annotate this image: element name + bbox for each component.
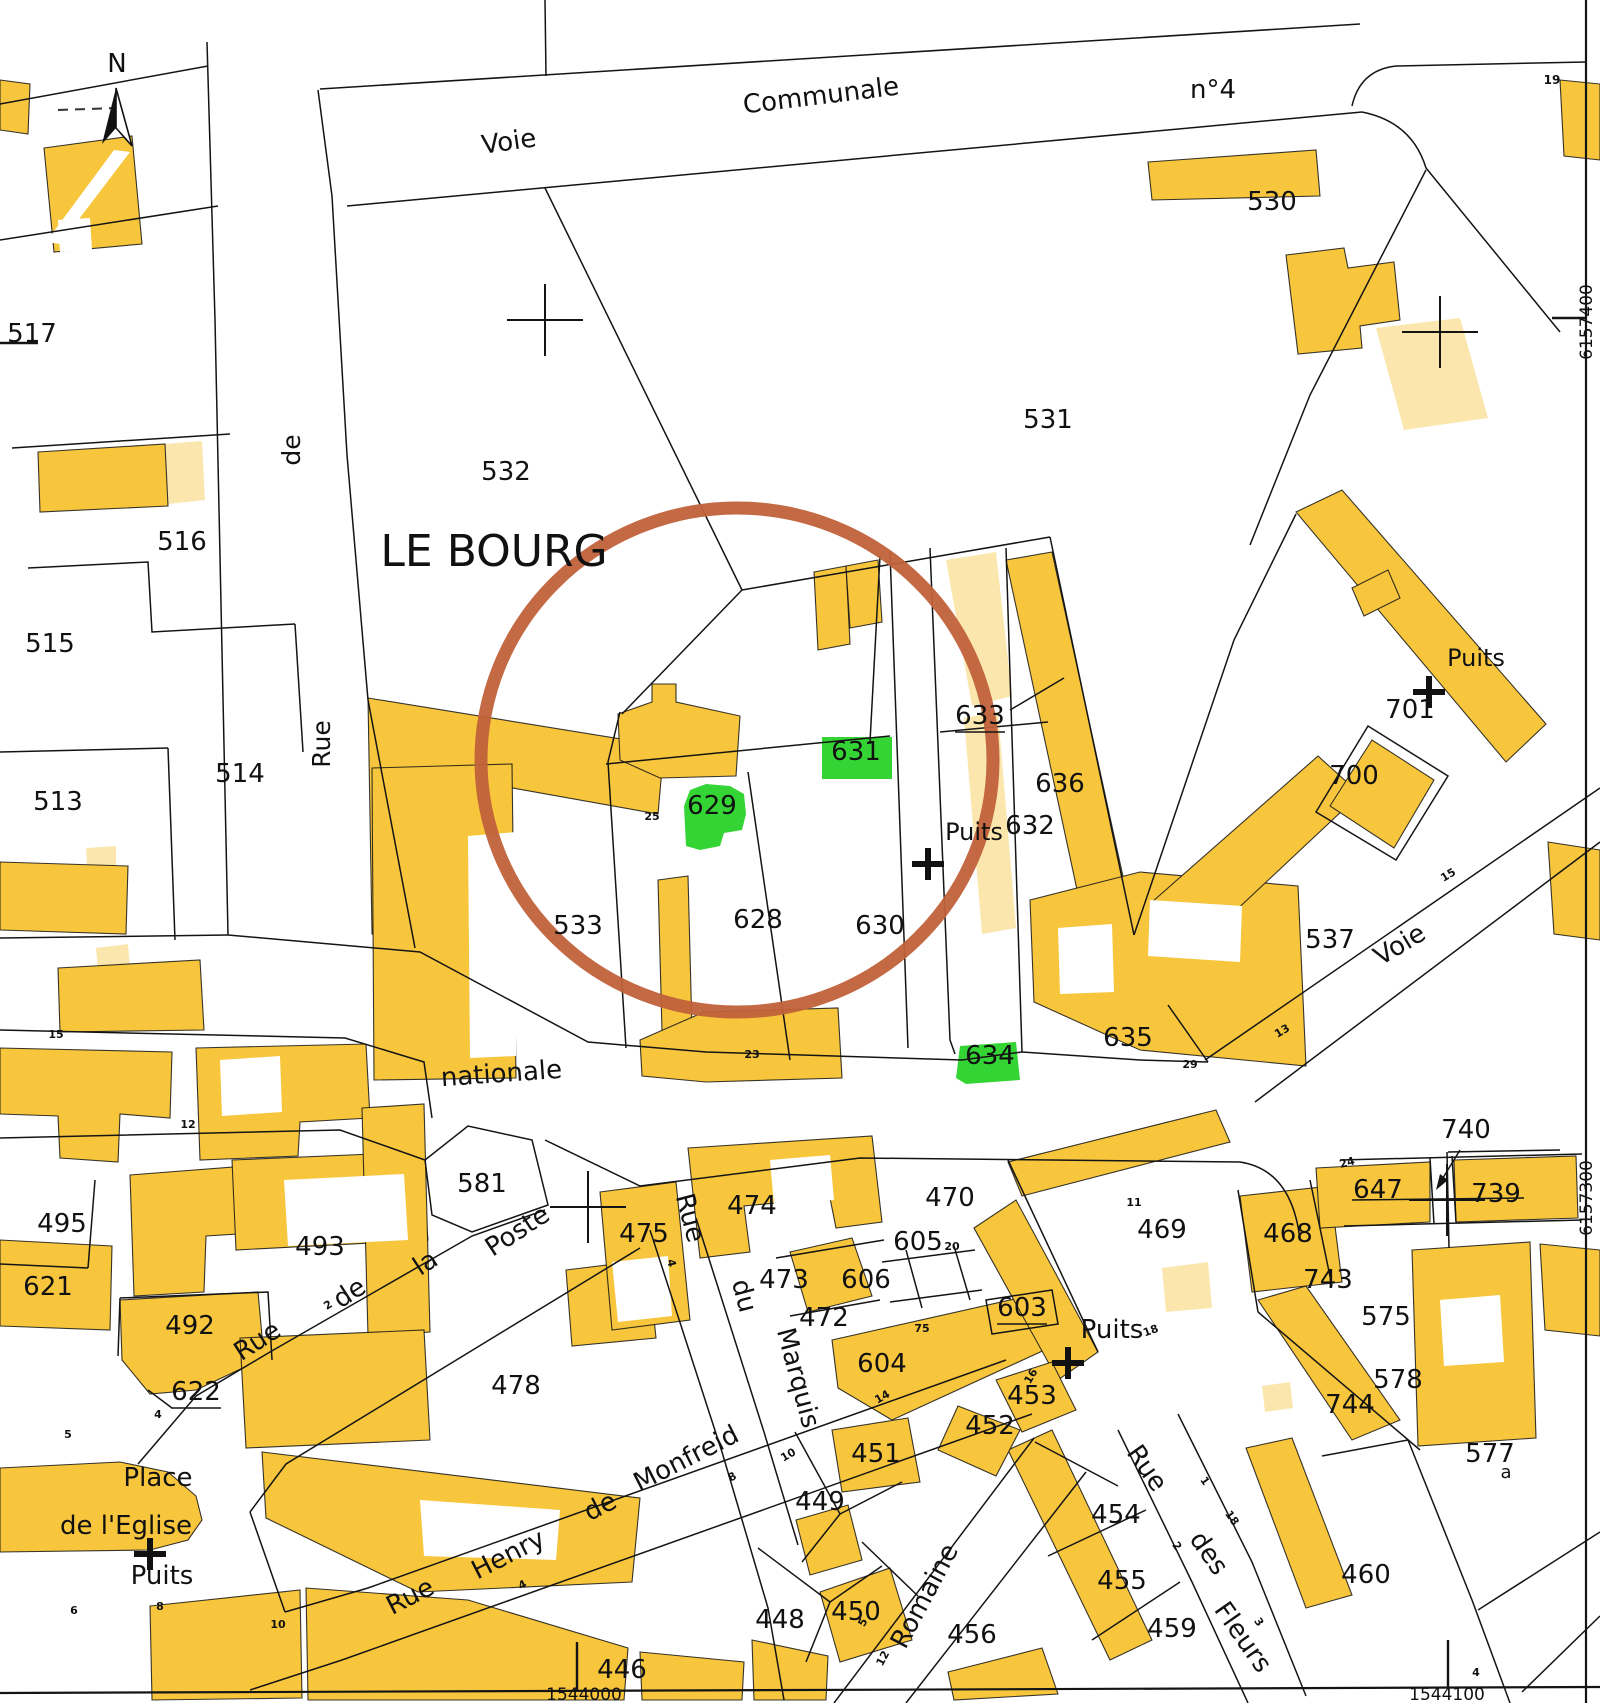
building-light — [1162, 1262, 1212, 1312]
map-label-647: 647 — [1353, 1175, 1403, 1205]
map-label-75: 75 — [914, 1322, 929, 1335]
map-label-4: 4 — [1472, 1666, 1480, 1679]
building — [814, 566, 850, 650]
map-label-636: 636 — [1035, 769, 1085, 799]
map-label-513: 513 — [33, 787, 83, 817]
map-label-8: 8 — [156, 1600, 164, 1613]
map-label-10: 10 — [270, 1618, 286, 1631]
map-label-604: 604 — [857, 1349, 907, 1379]
map-label-12: 12 — [180, 1118, 195, 1131]
map-label-605: 605 — [893, 1227, 943, 1257]
map-label-1544100: 1544100 — [1409, 1685, 1485, 1703]
map-label-459: 459 — [1147, 1614, 1197, 1644]
map-label-531: 531 — [1023, 405, 1073, 435]
building-light — [1262, 1382, 1293, 1412]
map-label-631: 631 — [831, 737, 881, 767]
building-light — [165, 441, 205, 504]
map-label-460: 460 — [1341, 1560, 1391, 1590]
courtyard — [1058, 924, 1114, 994]
map-label-515: 515 — [25, 629, 75, 659]
map-paper — [0, 0, 1600, 1703]
courtyard — [58, 218, 92, 252]
map-label-495: 495 — [37, 1209, 87, 1239]
map-label-29: 29 — [1182, 1058, 1197, 1071]
map-label-452: 452 — [965, 1411, 1015, 1441]
map-label-517: 517 — [7, 319, 57, 349]
map-label-469: 469 — [1137, 1215, 1187, 1245]
map-label-1544000: 1544000 — [546, 1685, 622, 1703]
map-label-514: 514 — [215, 759, 265, 789]
map-label-743: 743 — [1303, 1265, 1353, 1295]
map-label-635: 635 — [1103, 1023, 1153, 1053]
map-label-740: 740 — [1441, 1115, 1491, 1145]
map-label-468: 468 — [1263, 1219, 1313, 1249]
map-label-454: 454 — [1091, 1500, 1141, 1530]
map-label-n: N — [107, 49, 126, 79]
map-label-575: 575 — [1361, 1302, 1411, 1332]
building — [38, 444, 168, 512]
map-label-629: 629 — [687, 791, 737, 821]
map-label-20: 20 — [944, 1240, 960, 1253]
building — [1560, 80, 1600, 160]
map-label-n°4: n°4 — [1190, 75, 1236, 105]
map-label-470: 470 — [925, 1183, 975, 1213]
map-label-633: 633 — [955, 701, 1005, 731]
map-label-472: 472 — [799, 1303, 849, 1333]
building — [1548, 842, 1600, 940]
map-label-456: 456 — [947, 1620, 997, 1650]
cadastral-map-page: NVoieCommunalen°4195305176157400516deRue… — [0, 0, 1600, 1703]
map-label-632: 632 — [1005, 811, 1055, 841]
map-label-puits: Puits — [1447, 644, 1505, 672]
map-label-581: 581 — [457, 1169, 507, 1199]
map-label-533: 533 — [553, 911, 603, 941]
map-label-578: 578 — [1373, 1365, 1423, 1395]
map-label-474: 474 — [727, 1191, 777, 1221]
parcel-line — [545, 0, 546, 76]
map-label-621: 621 — [23, 1272, 73, 1302]
building — [58, 960, 204, 1032]
map-label-446: 446 — [597, 1655, 647, 1685]
building — [0, 80, 30, 134]
map-label-23: 23 — [744, 1048, 759, 1061]
map-label-puits: Puits — [131, 1561, 194, 1591]
map-label-739: 739 — [1471, 1179, 1521, 1209]
map-label-19: 19 — [1544, 73, 1561, 87]
map-label-744: 744 — [1325, 1390, 1375, 1420]
map-label-493: 493 — [295, 1232, 345, 1262]
cadastral-map: NVoieCommunalen°4195305176157400516deRue… — [0, 0, 1600, 1703]
courtyard — [1148, 900, 1242, 962]
map-label-475: 475 — [619, 1219, 669, 1249]
map-label-de-l'eglise: de l'Eglise — [60, 1511, 192, 1541]
map-background — [0, 0, 1600, 1703]
map-label-449: 449 — [795, 1487, 845, 1517]
map-label-a: a — [1500, 1462, 1511, 1483]
map-label-530: 530 — [1247, 187, 1297, 217]
map-label-11: 11 — [1126, 1196, 1141, 1209]
map-label-448: 448 — [755, 1605, 805, 1635]
map-label-5: 5 — [64, 1428, 72, 1441]
map-label-6157400: 6157400 — [1577, 284, 1597, 360]
map-label-516: 516 — [157, 527, 207, 557]
map-label-rue: Rue — [307, 720, 336, 767]
map-label-4: 4 — [154, 1408, 162, 1421]
map-label-455: 455 — [1097, 1566, 1147, 1596]
map-label-630: 630 — [855, 911, 905, 941]
building — [0, 862, 128, 934]
map-label-492: 492 — [165, 1311, 215, 1341]
map-label-le-bourg: LE BOURG — [380, 526, 607, 577]
map-label-628: 628 — [733, 905, 783, 935]
courtyard — [1440, 1295, 1504, 1366]
map-label-15: 15 — [48, 1028, 63, 1041]
building — [1540, 1244, 1600, 1336]
map-label-25: 25 — [644, 810, 659, 823]
map-label-537: 537 — [1305, 925, 1355, 955]
building — [150, 1590, 302, 1700]
map-label-622: 622 — [171, 1377, 221, 1407]
map-label-puits: Puits — [1081, 1315, 1144, 1345]
map-label-473: 473 — [759, 1265, 809, 1295]
map-label-700: 700 — [1329, 761, 1379, 791]
map-label-532: 532 — [481, 457, 531, 487]
map-label-603: 603 — [997, 1293, 1047, 1323]
map-label-478: 478 — [491, 1371, 541, 1401]
map-label-6: 6 — [70, 1604, 78, 1617]
map-label-place: Place — [123, 1463, 192, 1493]
map-label-701: 701 — [1385, 695, 1435, 725]
map-label-de: de — [277, 434, 306, 465]
courtyard — [612, 1256, 672, 1322]
map-label-634: 634 — [965, 1041, 1015, 1071]
map-label-6157300: 6157300 — [1577, 1160, 1597, 1236]
map-label-453: 453 — [1007, 1381, 1057, 1411]
map-label-451: 451 — [851, 1439, 901, 1469]
courtyard — [220, 1056, 282, 1116]
map-label-puits: Puits — [945, 818, 1003, 846]
map-label-606: 606 — [841, 1265, 891, 1295]
